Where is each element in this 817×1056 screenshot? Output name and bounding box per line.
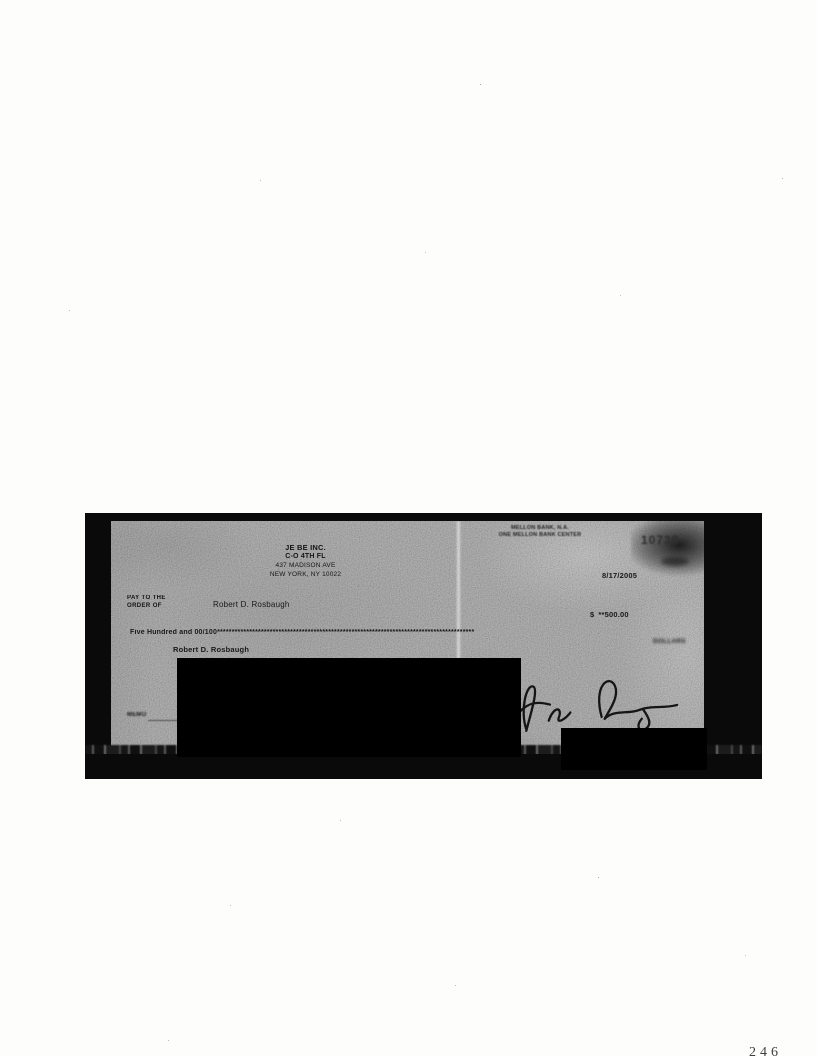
pay-to-line1: PAY TO THE [127,594,166,602]
redaction-box-address [177,658,521,757]
page-number-text: 246 [749,1046,797,1056]
pay-to-the-order-of-label: PAY TO THE ORDER OF [127,594,166,610]
scan-frame-right [704,513,762,779]
payer-address-2: 437 MADISON AVE [228,561,383,570]
bank-name: MELLON BANK, N.A. [473,525,607,532]
redaction-box-bottom-right [561,728,707,770]
scanned-check-image: MELLON BANK, N.A. ONE MELLON BANK CENTER… [85,513,762,779]
scanner-noise-specks [0,0,1,1]
amount-in-words: Five Hundred and 00/100*****************… [130,629,652,636]
dollar-sign: $ [590,610,594,619]
amount-words: Five Hundred and 00/100 [130,629,217,636]
bank-name-block: MELLON BANK, N.A. ONE MELLON BANK CENTER [473,525,607,539]
scan-frame-top [85,513,762,521]
scan-frame-left [85,513,111,779]
payer-address-3: NEW YORK, NY 10022 [228,570,383,579]
check-number: 10739 [641,533,679,547]
check-date: 8/17/2005 [602,571,637,580]
scan-smudge [661,557,689,566]
memo-label: MEMO [127,712,146,718]
payer-name: JE BE INC. [228,543,383,552]
payer-address-1: C-O 4TH FL [228,552,383,561]
asterisk-fill: ****************************************… [217,629,474,636]
bank-address: ONE MELLON BANK CENTER [473,532,607,539]
amount-value: **500.00 [598,610,628,619]
scan-dark-blotch [631,519,711,577]
pay-to-line2: ORDER OF [127,602,166,610]
payee-name: Robert D. Rosbaugh [213,600,290,609]
page-number: 246 [749,1046,797,1056]
amount-numeric: $**500.00 [590,610,629,619]
dollars-label: DOLLARS [653,638,686,645]
payee-address-name: Robert D. Rosbaugh [173,645,249,654]
payer-address-block: JE BE INC. C-O 4TH FL 437 MADISON AVE NE… [228,543,383,579]
